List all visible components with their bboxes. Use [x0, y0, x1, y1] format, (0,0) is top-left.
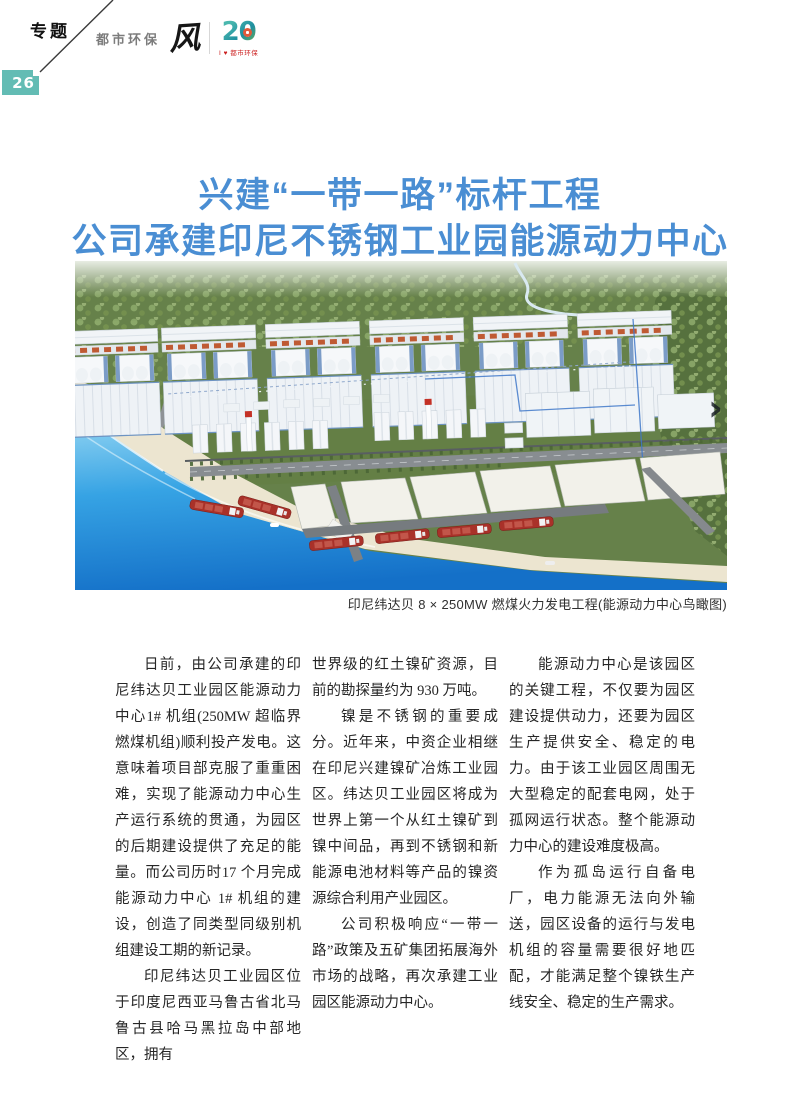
article-body: 日前，由公司承建的印尼纬达贝工业园区能源动力中心1# 机组(250MW 超临界燃…: [115, 652, 695, 1068]
body-paragraph: 镍是不锈钢的重要成分。近年来，中资企业相继在印尼兴建镍矿冶炼工业园区。纬达贝工业…: [312, 704, 498, 912]
body-paragraph: 公司积极响应“一带一路”政策及五矿集团拓展海外市场的战略，再次承建工业园区能源动…: [312, 912, 498, 1016]
brand-calligraphy-glyph: 风: [168, 21, 201, 54]
next-arrow-icon[interactable]: ›: [708, 391, 723, 427]
industrial-park-illustration: [75, 261, 727, 590]
anniversary-number: 20: [222, 19, 256, 45]
page-number-badge: 26: [2, 70, 39, 95]
body-paragraph: 世界级的红土镍矿资源，目前的勘探量约为 930 万吨。: [312, 652, 498, 704]
text-column-3: 能源动力中心是该园区的关键工程，不仅要为园区建设提供动力，还要为园区生产提供安全…: [509, 652, 695, 1068]
aerial-photo: ›: [75, 261, 727, 590]
body-paragraph: 作为孤岛运行自备电厂，电力能源无法向外输送，园区设备的运行与发电机组的容量需要很…: [509, 860, 695, 1016]
body-paragraph: 日前，由公司承建的印尼纬达贝工业园区能源动力中心1# 机组(250MW 超临界燃…: [115, 652, 301, 964]
anniversary-dot-icon: [243, 28, 252, 37]
magazine-page: { "page": { "topic": "专题", "number": "26…: [0, 0, 800, 1100]
badge-notch: [33, 70, 39, 76]
body-paragraph: 能源动力中心是该园区的关键工程，不仅要为园区建设提供动力，还要为园区生产提供安全…: [509, 652, 695, 860]
photo-caption: 印尼纬达贝 8 × 250MW 燃煤火力发电工程(能源动力中心鸟瞰图): [348, 594, 727, 613]
text-column-2: 世界级的红土镍矿资源，目前的勘探量约为 930 万吨。 镍是不锈钢的重要成分。近…: [312, 652, 498, 1068]
anniversary-tagline: I ♥ 都市环保: [219, 47, 258, 57]
body-paragraph: 印尼纬达贝工业园区位于印度尼西亚马鲁古省北马鲁古县哈马黑拉岛中部地区，拥有: [115, 964, 301, 1068]
page-number: 26: [12, 74, 35, 92]
brand-logo: 都市环保 风 20 I ♥ 都市环保: [96, 14, 258, 62]
article-title: 兴建“一带一路”标杆工程 公司承建印尼不锈钢工业园能源动力中心: [0, 173, 800, 265]
article-title-line2: 公司承建印尼不锈钢工业园能源动力中心: [71, 222, 728, 261]
topic-label: 专题: [30, 17, 70, 42]
text-column-1: 日前，由公司承建的印尼纬达贝工业园区能源动力中心1# 机组(250MW 超临界燃…: [115, 652, 301, 1068]
anniversary-logo: 20 I ♥ 都市环保: [219, 19, 258, 57]
brand-name: 都市环保: [96, 29, 160, 48]
article-title-line1: 兴建“一带一路”标杆工程: [198, 176, 601, 215]
brand-divider: [209, 22, 210, 54]
